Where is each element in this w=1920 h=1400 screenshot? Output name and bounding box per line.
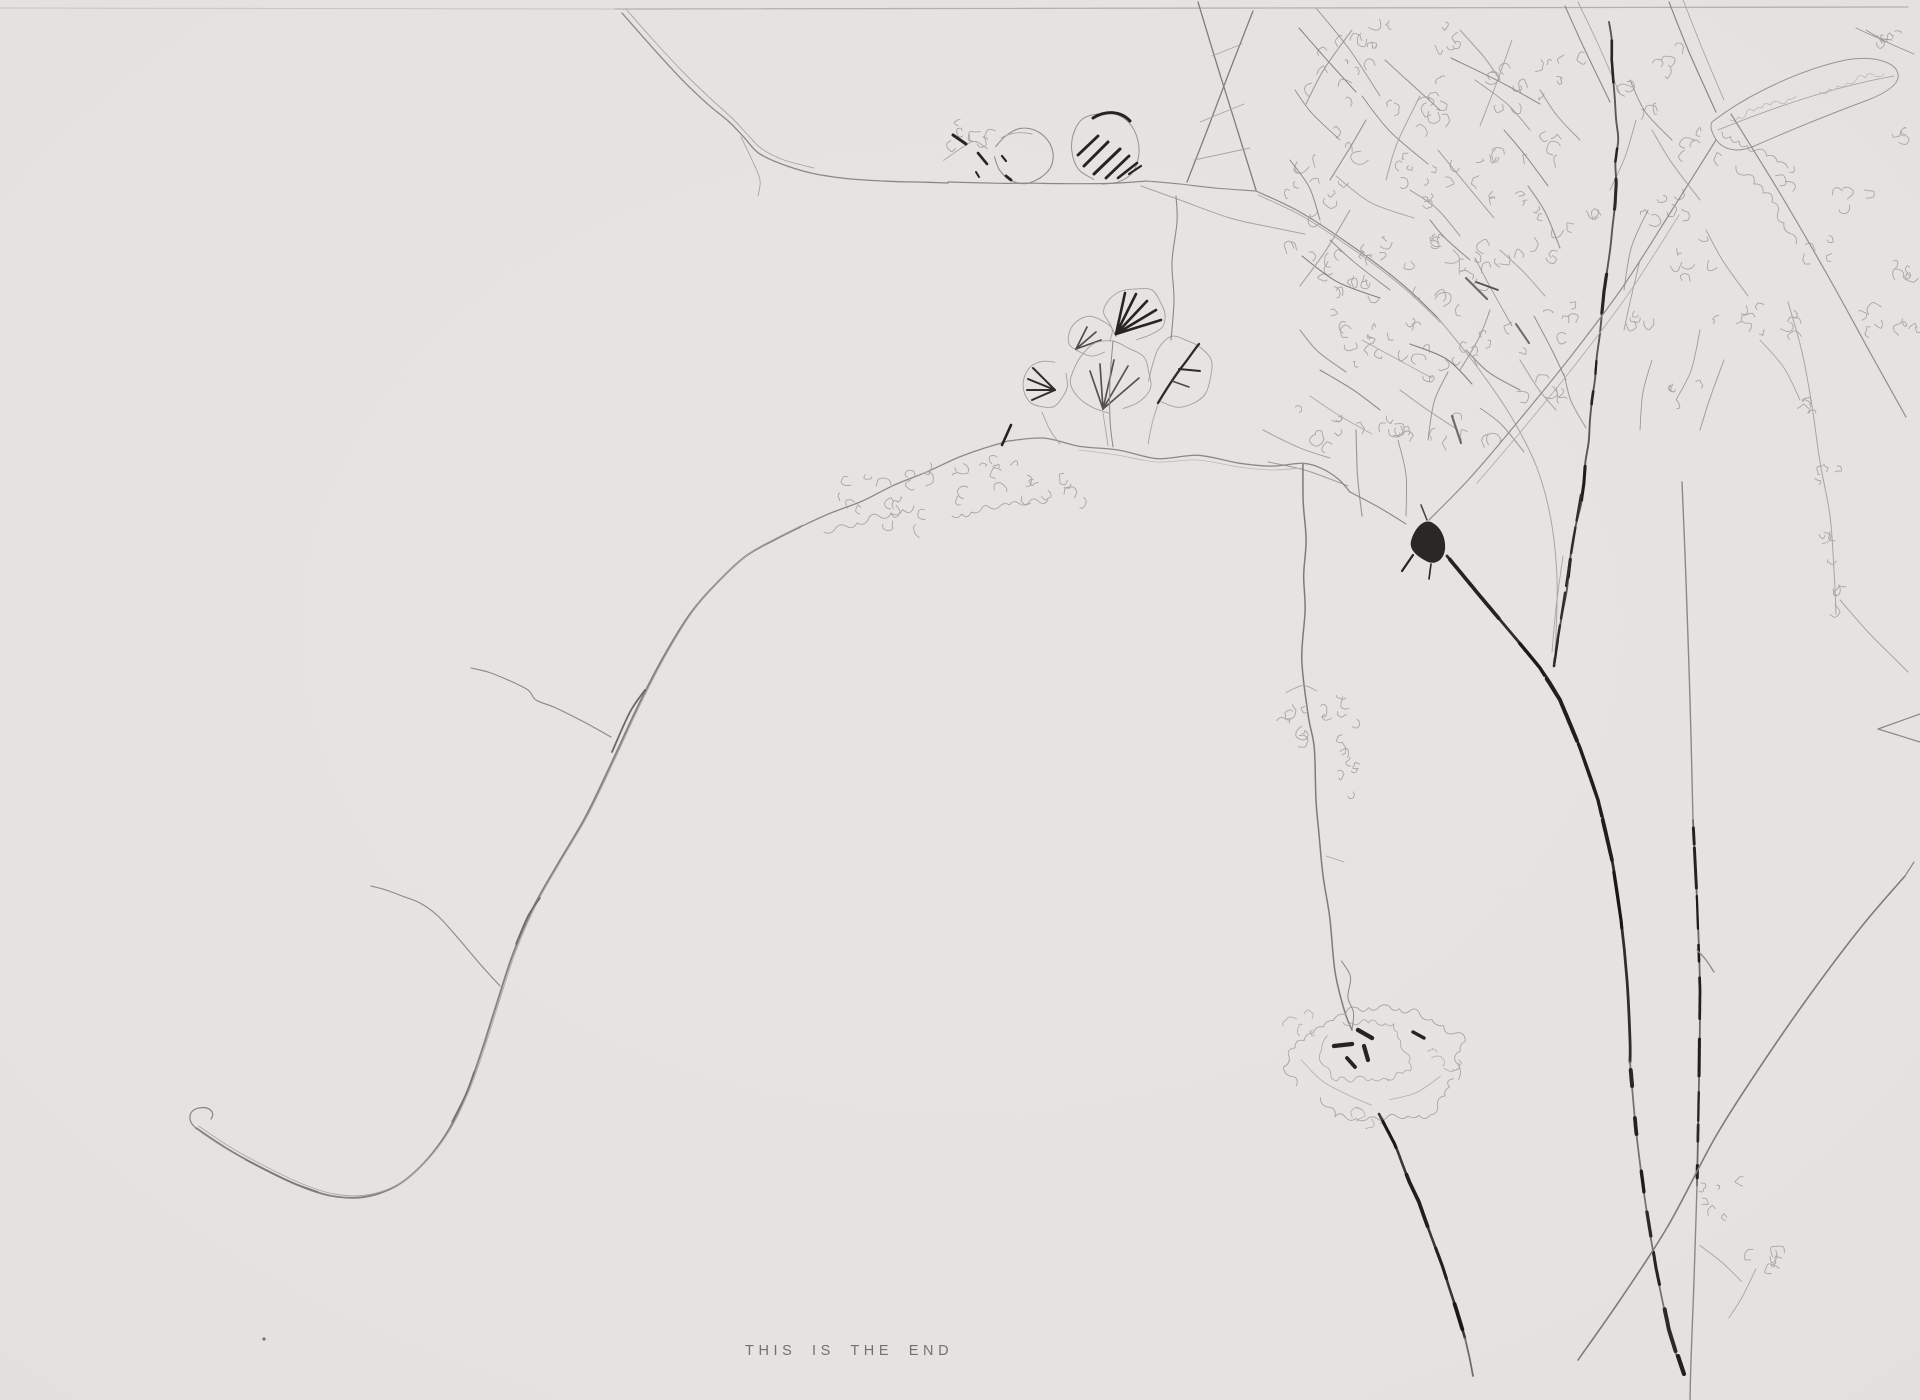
svg-text:THIS IS THE END: THIS IS THE END bbox=[745, 1343, 953, 1359]
